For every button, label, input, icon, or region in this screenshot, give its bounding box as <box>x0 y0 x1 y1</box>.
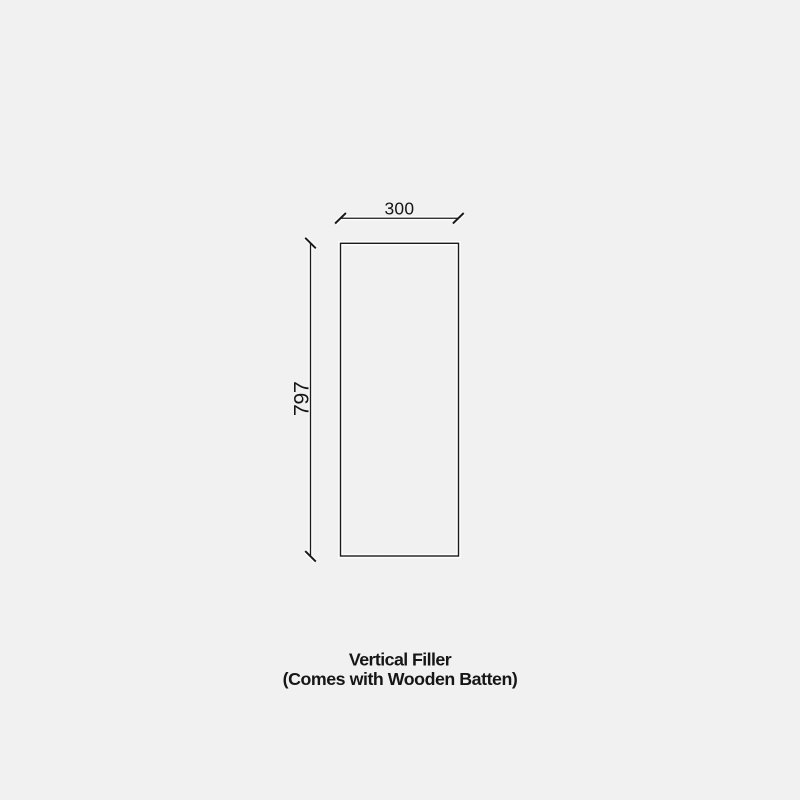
svg-text:300: 300 <box>384 199 414 219</box>
svg-text:(Comes with Wooden Batten): (Comes with Wooden Batten) <box>283 669 518 689</box>
svg-text:797: 797 <box>289 382 313 416</box>
svg-text:Vertical Filler: Vertical Filler <box>349 650 452 670</box>
